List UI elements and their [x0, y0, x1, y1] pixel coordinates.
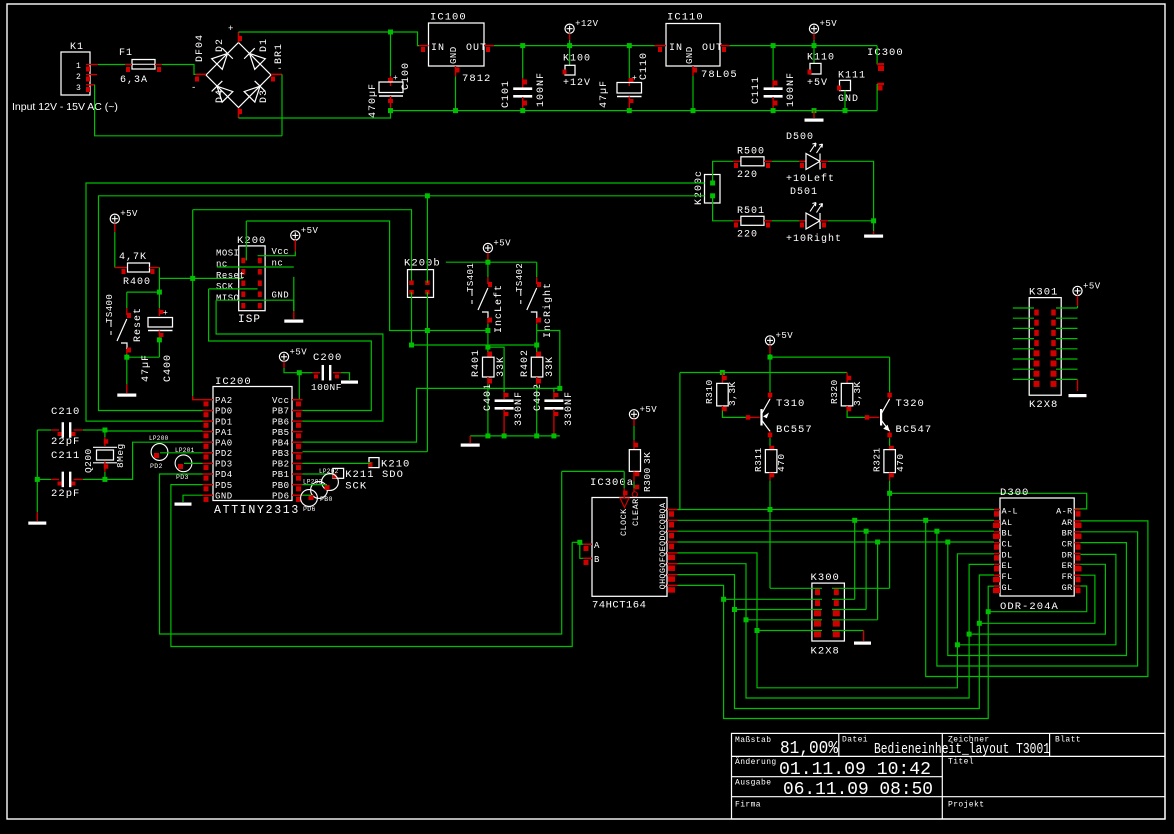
- svg-text:Maßstab: Maßstab: [735, 736, 771, 745]
- svg-text:Zeichner: Zeichner: [948, 736, 990, 745]
- svg-text:IC110: IC110: [667, 12, 704, 24]
- svg-text:ER: ER: [1062, 561, 1073, 571]
- svg-text:3,3K: 3,3K: [852, 381, 863, 406]
- svg-text:22pF: 22pF: [51, 488, 80, 500]
- svg-text:D1: D1: [259, 38, 270, 52]
- svg-text:BC547: BC547: [896, 424, 933, 436]
- svg-text:K2X8: K2X8: [1029, 399, 1058, 411]
- svg-text:C110: C110: [639, 52, 650, 80]
- svg-text:F1: F1: [119, 48, 133, 59]
- svg-text:47µF: 47µF: [141, 354, 152, 382]
- svg-text:R400: R400: [123, 277, 151, 288]
- svg-text:C101: C101: [501, 80, 512, 108]
- svg-text:22pF: 22pF: [51, 436, 80, 448]
- svg-text:Projekt: Projekt: [948, 801, 984, 810]
- svg-text:R501: R501: [737, 206, 765, 217]
- svg-text:+5V: +5V: [290, 347, 308, 357]
- svg-text:+10Right: +10Right: [786, 233, 842, 245]
- svg-text:SCK: SCK: [345, 481, 367, 493]
- svg-text:BC557: BC557: [776, 424, 813, 436]
- svg-text:Q200: Q200: [83, 448, 94, 473]
- svg-text:PD4: PD4: [215, 470, 233, 480]
- svg-text:CR: CR: [1062, 540, 1073, 550]
- svg-text:PA1: PA1: [215, 428, 233, 438]
- svg-text:GND: GND: [449, 46, 459, 64]
- svg-text:PB7: PB7: [272, 407, 290, 417]
- svg-text:470: 470: [776, 453, 787, 472]
- svg-text:R401: R401: [471, 349, 482, 377]
- svg-text:GND: GND: [215, 491, 233, 501]
- svg-text:B: B: [594, 555, 600, 565]
- svg-text:PB1: PB1: [272, 470, 290, 480]
- svg-text:SCK: SCK: [216, 282, 234, 292]
- svg-text:06.11.09 08:50: 06.11.09 08:50: [783, 780, 933, 800]
- svg-text:QH: QH: [658, 578, 668, 589]
- svg-text:C211: C211: [51, 450, 80, 462]
- svg-text:PB0: PB0: [272, 481, 290, 491]
- svg-text:Reset: Reset: [133, 307, 144, 342]
- svg-text:+: +: [163, 309, 168, 318]
- svg-text:D3: D3: [259, 89, 270, 103]
- svg-text:+5V: +5V: [807, 78, 828, 89]
- svg-text:T320: T320: [896, 398, 925, 410]
- svg-text:+: +: [393, 74, 398, 83]
- svg-text:TS402: TS402: [515, 263, 525, 292]
- svg-text:8Meg: 8Meg: [115, 443, 126, 468]
- svg-text:PB2: PB2: [272, 460, 290, 470]
- svg-text:GND: GND: [838, 94, 859, 105]
- svg-text:+12V: +12V: [563, 78, 591, 89]
- svg-text:+5V: +5V: [1083, 281, 1101, 291]
- svg-text:FL: FL: [1002, 572, 1013, 582]
- svg-text:PD0: PD0: [215, 407, 233, 417]
- svg-text:100NF: 100NF: [311, 382, 342, 393]
- svg-text:ISP: ISP: [238, 314, 261, 326]
- svg-text:330NF: 330NF: [514, 391, 525, 426]
- svg-text:LP200: LP200: [149, 435, 169, 442]
- svg-text:TS400: TS400: [105, 294, 115, 323]
- svg-text:BR1: BR1: [274, 43, 285, 64]
- svg-text:C400: C400: [163, 354, 174, 382]
- svg-text:220: 220: [737, 230, 758, 241]
- svg-text:CLEAR: CLEAR: [631, 498, 641, 526]
- svg-text:R402: R402: [520, 349, 531, 377]
- svg-text:IC200: IC200: [215, 376, 252, 388]
- svg-text:470µF: 470µF: [368, 83, 379, 118]
- svg-text:PD5: PD5: [215, 481, 233, 491]
- svg-text:QC: QC: [658, 524, 668, 535]
- svg-text:Vcc: Vcc: [272, 396, 290, 406]
- svg-text:K211 SDO: K211 SDO: [345, 469, 404, 481]
- svg-text:PA2: PA2: [215, 396, 233, 406]
- svg-text:T310: T310: [776, 398, 805, 410]
- svg-text:Reset: Reset: [216, 271, 245, 281]
- svg-text:K200b: K200b: [404, 258, 441, 270]
- svg-text:K100: K100: [563, 54, 591, 65]
- svg-text:QB: QB: [658, 513, 668, 524]
- svg-text:GL: GL: [1002, 583, 1013, 593]
- svg-text:D4: D4: [215, 89, 226, 103]
- svg-text:A-L: A-L: [1002, 506, 1019, 516]
- svg-text:+: +: [632, 74, 637, 83]
- svg-text:D2: D2: [215, 38, 226, 52]
- svg-text:K200: K200: [237, 235, 266, 247]
- svg-text:PB0: PB0: [320, 496, 333, 503]
- svg-text:47µF: 47µF: [599, 80, 610, 108]
- svg-text:K2X8: K2X8: [811, 646, 840, 658]
- svg-text:QE: QE: [658, 546, 668, 557]
- svg-text:MISO: MISO: [216, 294, 239, 304]
- svg-text:6,3A: 6,3A: [120, 75, 148, 86]
- svg-text:PD6: PD6: [272, 491, 290, 501]
- svg-text:100NF: 100NF: [786, 72, 797, 107]
- svg-text:C401: C401: [483, 383, 494, 411]
- svg-text:PD3: PD3: [176, 474, 189, 481]
- svg-text:R500: R500: [737, 147, 765, 158]
- svg-text:K1: K1: [70, 42, 84, 53]
- svg-text:PD2: PD2: [150, 463, 163, 470]
- svg-text:R320: R320: [829, 379, 840, 404]
- svg-text:D501: D501: [790, 187, 818, 198]
- svg-text:3K: 3K: [642, 452, 653, 464]
- svg-text:LP202: LP202: [319, 468, 339, 475]
- svg-text:3,3K: 3,3K: [727, 381, 738, 406]
- svg-text:R311: R311: [753, 447, 764, 472]
- svg-text:K200c: K200c: [694, 170, 705, 205]
- svg-text:A-R: A-R: [1056, 506, 1073, 516]
- svg-text:+5V: +5V: [640, 405, 658, 415]
- svg-text:81,00%: 81,00%: [780, 739, 838, 759]
- svg-text:TS401: TS401: [466, 263, 476, 292]
- svg-text:GR: GR: [1062, 583, 1073, 593]
- svg-text:D300: D300: [1000, 487, 1029, 499]
- svg-text:PB3: PB3: [272, 449, 290, 459]
- svg-text:ATTINY2313: ATTINY2313: [214, 504, 300, 517]
- svg-text:330NF: 330NF: [564, 391, 575, 426]
- svg-text:EL: EL: [1002, 561, 1013, 571]
- svg-text:Ausgabe: Ausgabe: [735, 779, 771, 788]
- svg-text:IC300a: IC300a: [590, 477, 634, 489]
- svg-text:A: A: [594, 541, 600, 551]
- svg-text:PB5: PB5: [272, 428, 290, 438]
- svg-text:LP201: LP201: [175, 447, 195, 454]
- svg-text:PB6: PB6: [272, 417, 290, 427]
- svg-text:3: 3: [76, 84, 81, 93]
- svg-text:+5V: +5V: [776, 331, 794, 341]
- svg-text:AR: AR: [1062, 518, 1073, 528]
- svg-text:1: 1: [76, 62, 81, 71]
- svg-text:MOSI: MOSI: [216, 248, 239, 258]
- svg-text:BL: BL: [1002, 529, 1013, 539]
- svg-text:C111: C111: [751, 76, 762, 104]
- svg-text:Titel: Titel: [948, 758, 974, 767]
- svg-text:01.11.09 10:42: 01.11.09 10:42: [779, 760, 931, 780]
- svg-text:K111: K111: [838, 71, 866, 82]
- svg-text:QD: QD: [658, 535, 668, 546]
- svg-text:IN: IN: [669, 43, 683, 54]
- svg-text:+5V: +5V: [820, 19, 838, 29]
- svg-text:C100: C100: [401, 62, 412, 90]
- svg-text:QA: QA: [658, 502, 668, 514]
- svg-text:IC300: IC300: [867, 47, 904, 59]
- svg-text:78L05: 78L05: [701, 69, 738, 81]
- svg-text:FR: FR: [1062, 572, 1073, 582]
- svg-text:K301: K301: [1029, 287, 1058, 299]
- svg-text:OUT: OUT: [466, 43, 487, 54]
- svg-text:PD3: PD3: [215, 460, 233, 470]
- svg-text:PD6: PD6: [303, 506, 316, 513]
- svg-text:GND: GND: [685, 46, 695, 64]
- svg-text:74HCT164: 74HCT164: [592, 600, 646, 612]
- svg-text:+10Left: +10Left: [786, 173, 835, 185]
- svg-text:QF: QF: [658, 557, 668, 568]
- svg-text:IncRight: IncRight: [542, 282, 554, 338]
- svg-text:PB4: PB4: [272, 438, 290, 448]
- svg-text:nc: nc: [216, 260, 228, 270]
- svg-text:DR: DR: [1062, 550, 1073, 560]
- svg-text:Firma: Firma: [735, 801, 761, 810]
- svg-text:-: -: [277, 64, 283, 74]
- svg-text:2: 2: [76, 73, 81, 82]
- svg-text:Blatt: Blatt: [1055, 736, 1081, 745]
- svg-text:Datei: Datei: [842, 736, 868, 745]
- svg-text:+5V: +5V: [301, 226, 319, 236]
- svg-text:PA0: PA0: [215, 438, 233, 448]
- svg-text:D500: D500: [786, 132, 814, 143]
- svg-text:C210: C210: [51, 406, 80, 418]
- svg-text:IC100: IC100: [430, 12, 467, 24]
- svg-text:R300: R300: [642, 467, 653, 492]
- svg-text:470: 470: [895, 453, 906, 472]
- svg-text:-: -: [191, 83, 197, 93]
- svg-text:CL: CL: [1002, 540, 1013, 550]
- svg-text:C402: C402: [533, 383, 544, 411]
- svg-text:OUT: OUT: [702, 43, 723, 54]
- svg-text:DF04: DF04: [195, 34, 206, 62]
- svg-text:GND: GND: [272, 291, 290, 301]
- svg-text:Änderung: Änderung: [735, 758, 777, 767]
- svg-text:IncLeft: IncLeft: [493, 284, 505, 333]
- svg-text:+5V: +5V: [493, 239, 511, 249]
- svg-text:+12V: +12V: [575, 19, 599, 29]
- svg-text:+5V: +5V: [120, 209, 138, 219]
- svg-text:R310: R310: [704, 379, 715, 404]
- svg-text:220: 220: [737, 170, 758, 181]
- svg-text:7812: 7812: [462, 73, 491, 85]
- svg-text:+: +: [228, 24, 234, 34]
- svg-text:4,7K: 4,7K: [119, 252, 147, 263]
- svg-text:BR: BR: [1062, 529, 1073, 539]
- svg-text:CLOCK: CLOCK: [619, 508, 629, 536]
- svg-text:K300: K300: [811, 572, 840, 584]
- svg-text:DL: DL: [1002, 550, 1013, 560]
- svg-text:R321: R321: [872, 447, 883, 472]
- svg-text:33K: 33K: [496, 356, 507, 377]
- svg-text:QG: QG: [658, 568, 668, 579]
- svg-text:IN: IN: [431, 43, 445, 54]
- svg-text:C200: C200: [313, 352, 342, 364]
- svg-text:AL: AL: [1002, 518, 1013, 528]
- svg-text:Input 12V - 15V AC (~): Input 12V - 15V AC (~): [12, 101, 118, 113]
- svg-text:PD1: PD1: [215, 417, 233, 427]
- svg-text:33K: 33K: [545, 356, 556, 377]
- svg-text:PD2: PD2: [215, 449, 233, 459]
- svg-text:100NF: 100NF: [536, 72, 547, 107]
- svg-text:K110: K110: [807, 53, 835, 64]
